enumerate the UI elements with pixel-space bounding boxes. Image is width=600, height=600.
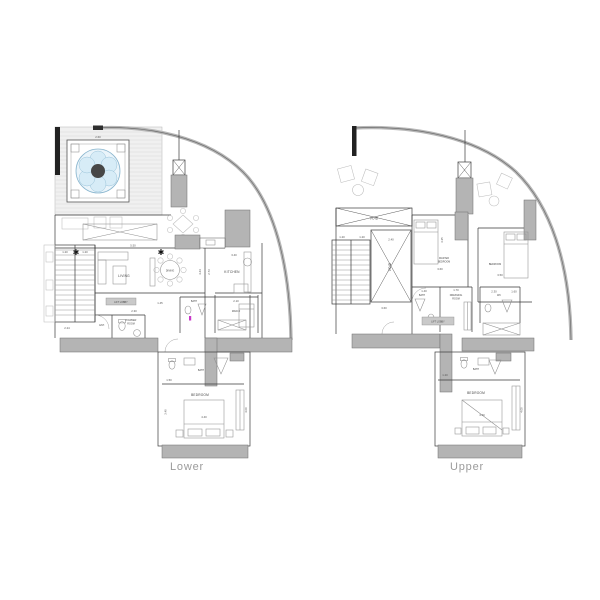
dim-stair-c: 2.24 — [64, 326, 70, 330]
corridor-slabs — [60, 338, 292, 386]
dim-bedroom-w: 3.50 — [497, 273, 503, 277]
void-box-label: VOID — [388, 262, 392, 271]
dim-stair-b: 1.20 — [82, 250, 88, 254]
side-balcony — [44, 245, 55, 322]
dim-stair-a: 1.20 — [62, 250, 68, 254]
staircase: 1.20 1.20 — [332, 235, 370, 304]
terrace-furniture: ✱ ✱ — [55, 208, 199, 257]
entrance: ENT. POWDER ROOM — [99, 319, 140, 336]
dim-maid-w: 2.10 — [233, 299, 239, 303]
wc-label: WC — [497, 294, 501, 297]
dim-living-h: 4.44 — [198, 269, 202, 275]
dim-stair-b: 1.20 — [359, 235, 365, 239]
dim-jacuzzi: 2.60 — [95, 135, 101, 139]
lower-caption: Lower — [142, 461, 232, 473]
upper-bedroom: BEDROOM 3.50 — [489, 232, 528, 278]
bedroom-low-label: BEDROOM — [467, 391, 485, 395]
dim-bed-h: 4.00 — [520, 407, 524, 413]
maid-room: BATH MAID.R 2.10 — [185, 299, 254, 330]
dim-living-w: 5.50 — [130, 244, 136, 248]
dim-void-b: 3.60 — [381, 306, 387, 310]
void-band-label: VOID — [370, 217, 379, 221]
dim-bath-w: 1.50 — [166, 378, 172, 382]
dim-corr: 1.45 — [157, 301, 163, 305]
lift-lobby: LIFT LOBBY 2.30 1.45 — [106, 298, 163, 313]
upper-caption: Upper — [422, 461, 512, 473]
dim-bed-side: 3.40 — [164, 409, 168, 415]
dim-bed-w: 4.40 — [201, 415, 207, 419]
kitchen: KITCHEN 3.40 2.73 — [207, 252, 252, 293]
dining-area: DINING — [154, 254, 186, 286]
terrace-furniture — [337, 165, 512, 206]
dim-master-w: 3.60 — [437, 267, 443, 271]
dim-kitchen-h: 2.73 — [207, 269, 211, 275]
dim-stair-a: 1.20 — [339, 235, 345, 239]
dim-kitchen-w: 3.40 — [231, 253, 237, 257]
structure-columns — [175, 210, 250, 249]
lift-lobby: LIFT LOBBY — [422, 317, 454, 325]
bath-label: BATH — [198, 369, 204, 372]
dim-bed-h: 4.00 — [244, 407, 248, 413]
living-room: LIVING 5.50 4.44 — [98, 244, 202, 287]
bath-mid-label: BATH — [191, 300, 197, 303]
lobby-label: LIFT LOBBY — [114, 301, 128, 304]
upper-floor-plan: VOID 1.20 1.20 VOID 2.40 3.60 MASTER — [318, 112, 574, 464]
master-bedroom: MASTER BEDROOM 3.60 3.35 — [414, 220, 450, 271]
living-label: LIVING — [118, 274, 130, 278]
ceiling-fan-icon: ✱ — [73, 248, 80, 257]
ceiling-fan-icon: ✱ — [158, 248, 165, 257]
dim-dressing-t: 1.70 — [453, 288, 459, 292]
dim-bed-w: 4.40 — [479, 413, 485, 417]
wc-room: WC 2.30 1.60 — [483, 290, 520, 336]
ent-label: ENT. — [99, 324, 105, 327]
dim-hall: 2.30 — [131, 309, 137, 313]
interior-walls — [336, 208, 532, 334]
bedroom-suite: BATH 1.50 BEDROOM 4.40 4.00 3.40 — [158, 352, 250, 458]
jacuzzi: 2.60 — [67, 135, 129, 202]
dim-master-h: 3.35 — [440, 237, 444, 243]
dim-wc-a: 2.30 — [491, 290, 497, 294]
marker-magenta — [189, 316, 191, 321]
powder-label-2: ROOM — [127, 323, 134, 326]
dim-wc-b: 1.60 — [511, 290, 517, 294]
lower-floor-plan: 2.60 ✱ ✱ — [38, 112, 294, 464]
bedroom-label: BEDROOM — [489, 263, 501, 266]
dim-bath-t: 1.40 — [421, 289, 427, 293]
void-band: VOID — [336, 208, 412, 226]
bath-low-label: BATH — [473, 368, 479, 371]
dim-void-w: 2.40 — [388, 238, 394, 242]
bath-label: BATH — [419, 294, 425, 297]
dressing-label-2: ROOM — [452, 298, 459, 301]
staircase: 1.20 1.20 2.24 — [55, 245, 95, 330]
elevator-shaft — [171, 130, 187, 207]
lobby-label: LIFT LOBBY — [431, 321, 445, 324]
corridor-slabs — [352, 334, 534, 392]
master-label-2: BEDROOM — [438, 261, 450, 264]
dining-label: DINING — [166, 269, 175, 272]
bedroom-label: BEDROOM — [191, 393, 209, 397]
dim-bath-low-l: 1.20 — [442, 373, 448, 377]
kitchen-label: KITCHEN — [224, 270, 240, 274]
void-box: VOID 2.40 3.60 — [371, 230, 411, 310]
